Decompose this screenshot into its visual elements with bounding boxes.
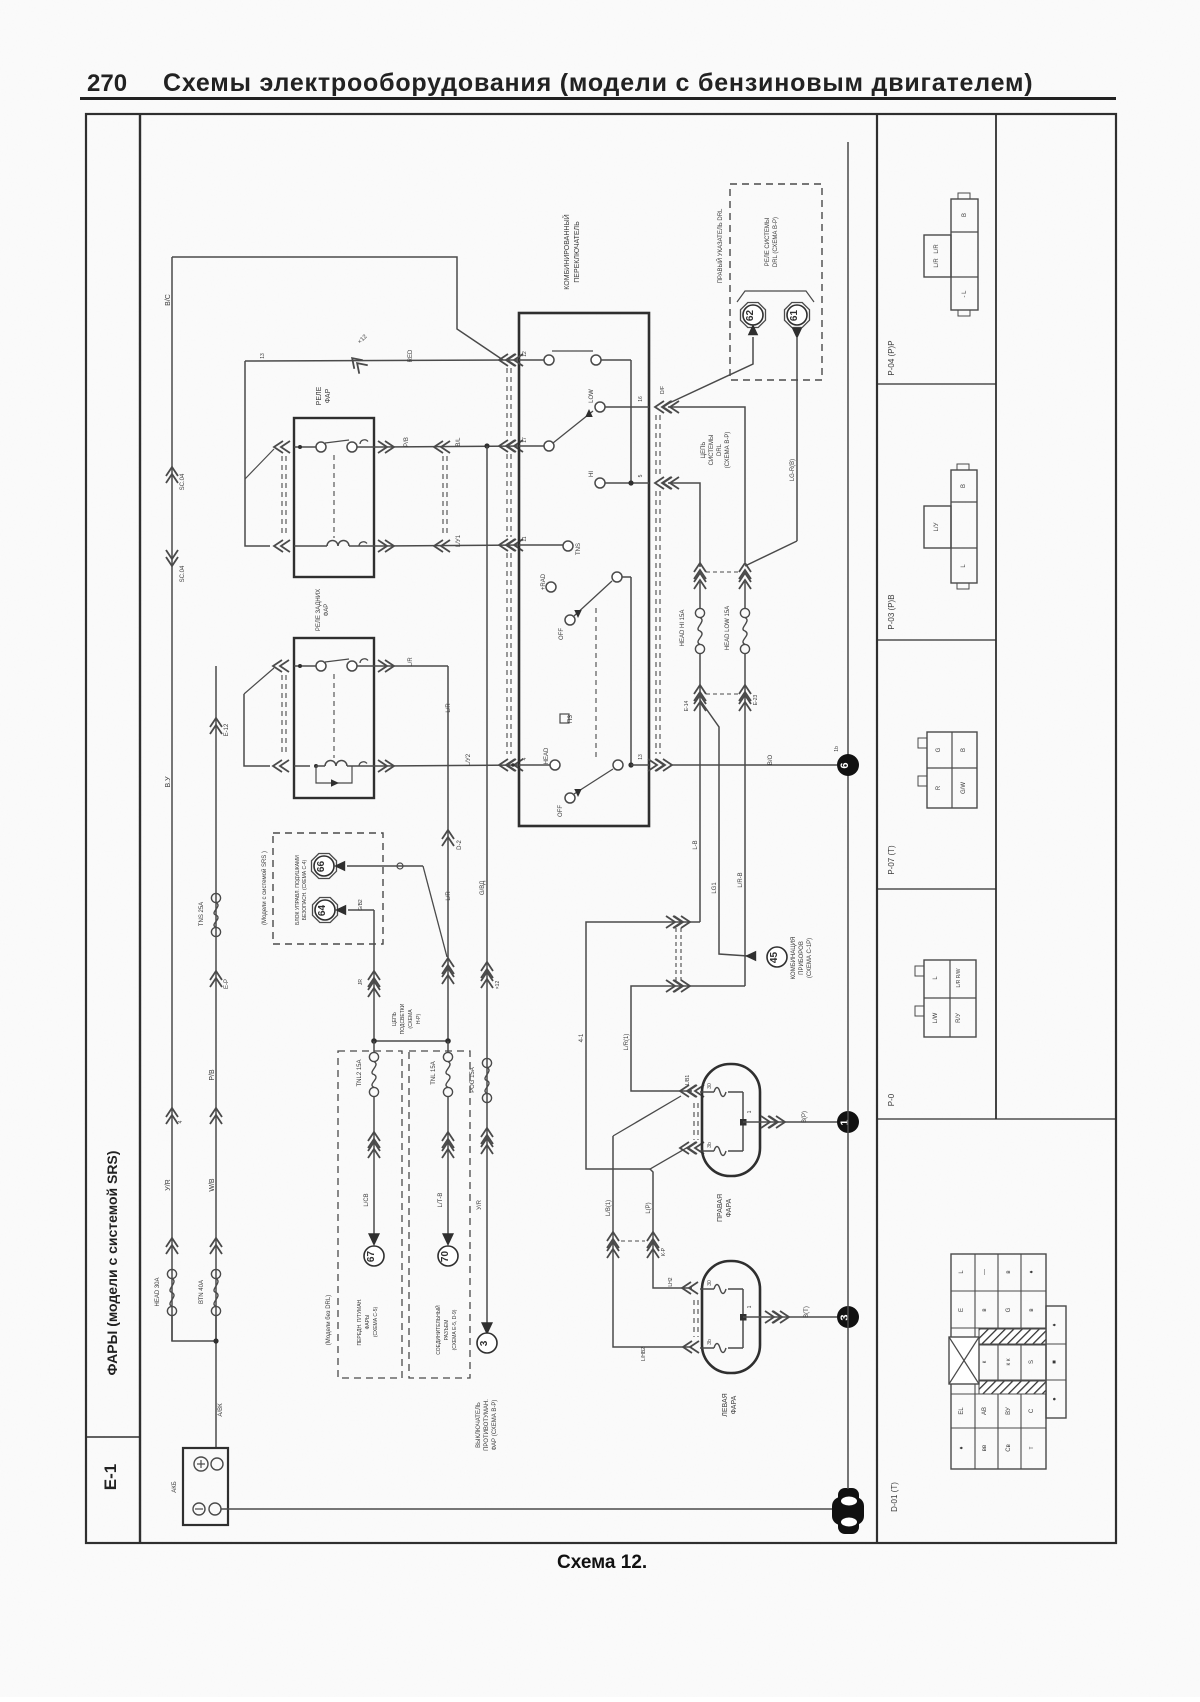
svg-text:DRL: DRL	[717, 443, 723, 456]
svg-text:D-2: D-2	[457, 840, 463, 850]
svg-text:Е-Р: Е-Р	[224, 979, 230, 989]
svg-text:64: 64	[317, 905, 328, 917]
svg-text:66: 66	[316, 861, 327, 873]
svg-text:т: т	[1029, 1446, 1035, 1449]
svg-text:ОFF: ОFF	[559, 628, 565, 640]
svg-text:НI: НI	[589, 471, 595, 477]
svg-text:L/У1: L/У1	[456, 534, 462, 547]
svg-text:G/ВД: G/ВД	[480, 881, 486, 895]
svg-text:вв: вв	[982, 1445, 988, 1451]
svg-text:45: 45	[769, 952, 780, 964]
svg-text:4: 4	[178, 1120, 184, 1123]
svg-text:ПЕРЕДН. П/ТУМАН.: ПЕРЕДН. П/ТУМАН.	[357, 1298, 363, 1345]
svg-text:4: 4	[522, 757, 528, 760]
svg-text:ТNS 25А: ТNS 25А	[199, 902, 205, 926]
svg-text:G: G	[1006, 1307, 1012, 1312]
svg-text:17: 17	[522, 437, 528, 443]
svg-text:ПРАВАЯ: ПРАВАЯ	[717, 1194, 724, 1222]
svg-text:30: 30	[707, 1280, 713, 1286]
svg-text:3b: 3b	[707, 1142, 713, 1148]
svg-text:(СХЕМА С-1Р): (СХЕМА С-1Р)	[807, 938, 813, 978]
svg-text:АВ: АВ	[982, 1407, 988, 1415]
svg-text:1b: 1b	[834, 746, 840, 752]
svg-text:D/F: D/F	[660, 386, 666, 394]
svg-text:1: 1	[747, 1110, 753, 1113]
svg-text:5: 5	[638, 474, 644, 477]
svg-text:ФАРА: ФАРА	[731, 1395, 738, 1414]
svg-text:ВУ: ВУ	[1006, 1407, 1012, 1415]
svg-text:(СХЕМА В-Р): (СХЕМА В-Р)	[725, 432, 731, 469]
svg-text:КОМБИНИРОВАННЫЙ: КОМБИНИРОВАННЫЙ	[562, 214, 571, 289]
svg-text:DRL (СХЕМА В-Р): DRL (СХЕМА В-Р)	[773, 217, 779, 267]
svg-text:(Модели с системой SRS ): (Модели с системой SRS )	[261, 851, 268, 925]
svg-text:ЕL: ЕL	[959, 1407, 965, 1415]
svg-text:НЕАD НI 15А: НЕАD НI 15А	[680, 610, 686, 647]
svg-text:ПРОТИВОТУМАН.: ПРОТИВОТУМАН.	[484, 1399, 490, 1451]
svg-text:РАЗЪЕМ: РАЗЪЕМ	[444, 1320, 450, 1341]
svg-text:к: к	[982, 1360, 988, 1363]
svg-text:30: 30	[707, 1083, 713, 1089]
svg-text:в: в	[1006, 1270, 1012, 1273]
svg-text:РОG 15А: РОG 15А	[470, 1067, 476, 1093]
svg-text:ФАР (СХЕМА В-Р): ФАР (СХЕМА В-Р)	[492, 1400, 498, 1451]
svg-text:S: S	[1029, 1360, 1035, 1364]
svg-text:У/R: У/R	[165, 1179, 172, 1190]
svg-text:Р/В: Р/В	[404, 437, 410, 447]
svg-text:В: В	[962, 213, 968, 217]
svg-text:L/R-В: L/R-В	[738, 872, 744, 887]
svg-text:КОМБИНАЦИЯ: КОМБИНАЦИЯ	[791, 937, 797, 980]
svg-text:У/R: У/R	[477, 1199, 483, 1209]
svg-text:L/СВ: L/СВ	[364, 1193, 370, 1206]
svg-text:РЕЛЕ ЗАДНИХ: РЕЛЕ ЗАДНИХ	[316, 589, 322, 631]
svg-text:L-В: L-В	[693, 840, 699, 849]
svg-text:ПОДСВЕТКИ: ПОДСВЕТКИ	[400, 1003, 406, 1034]
svg-text:Е-14: Е-14	[684, 701, 690, 712]
svg-text:R/У: R/У	[956, 1013, 962, 1023]
svg-text:13: 13	[638, 754, 644, 760]
svg-text:13: 13	[260, 353, 266, 359]
svg-text:Е: Е	[959, 1308, 965, 1312]
svg-text:6: 6	[839, 762, 851, 768]
svg-text:ТNL 15А: ТNL 15А	[431, 1061, 437, 1084]
svg-text:ТNS: ТNS	[576, 543, 582, 555]
svg-text:SC.04: SC.04	[180, 565, 186, 582]
svg-text:ФАРА: ФАРА	[726, 1198, 733, 1217]
svg-text:D-01 (Т): D-01 (Т)	[890, 1482, 899, 1512]
svg-text:(СХЕМА: (СХЕМА	[408, 1009, 414, 1029]
svg-text:в: в	[982, 1308, 988, 1311]
svg-text:61: 61	[789, 310, 800, 322]
svg-text:3: 3	[479, 1340, 490, 1346]
svg-text:ЦЕПЬ: ЦЕПЬ	[392, 1011, 398, 1026]
svg-text:(СХЕМА Е-5, D-9): (СХЕМА Е-5, D-9)	[452, 1309, 458, 1350]
svg-text:L/НВ2: L/НВ2	[641, 1347, 647, 1361]
svg-text:L(Р): L(Р)	[646, 1202, 652, 1213]
svg-text:В: В	[961, 484, 967, 488]
svg-text:ТNL2 15А: ТNL2 15А	[357, 1059, 363, 1086]
svg-text:ПЗ: ПЗ	[568, 715, 574, 723]
svg-text:L/В(1): L/В(1)	[606, 1200, 612, 1216]
svg-text:Р-04 (Р)Р: Р-04 (Р)Р	[887, 340, 896, 375]
svg-text:ПРАВЫЙ УКАЗАТЕЛЬ DRL: ПРАВЫЙ УКАЗАТЕЛЬ DRL	[716, 208, 724, 283]
svg-text:L/R: L/R	[934, 244, 940, 254]
svg-text:HEAD 30А: HEAD 30А	[155, 1277, 161, 1306]
svg-text:L/У: L/У	[934, 522, 940, 531]
svg-text:ПЕРЕКЛЮЧАТЕЛЬ: ПЕРЕКЛЮЧАТЕЛЬ	[574, 221, 581, 283]
svg-text:♦: ♦	[959, 1446, 965, 1449]
svg-text:В: В	[961, 748, 967, 752]
svg-text:А/ВК: А/ВК	[218, 1403, 224, 1417]
svg-text:ФАР: ФАР	[324, 604, 330, 616]
svg-text:В.У: В.У	[165, 776, 172, 788]
svg-text:L/У2: L/У2	[466, 753, 472, 766]
svg-text:♦: ♦	[1052, 1323, 1058, 1326]
svg-text:ЦЕПЬ: ЦЕПЬ	[701, 442, 707, 459]
svg-text:В/О: В/О	[768, 755, 774, 766]
svg-text:Св: Св	[1006, 1444, 1012, 1452]
svg-text:1: 1	[839, 1119, 851, 1125]
svg-text:В(Р): В(Р)	[802, 1111, 808, 1123]
svg-text:ФАРЫ (модели с системой SRS): ФАРЫ (модели с системой SRS)	[104, 1151, 120, 1376]
svg-text:RЕD: RЕD	[408, 349, 414, 362]
svg-text:L/В1: L/В1	[685, 1075, 691, 1086]
svg-text:L/R: L/R	[408, 657, 414, 667]
svg-text:R: R	[936, 785, 942, 790]
svg-text:СОЕДИНИТЕЛЬНЫЙ: СОЕДИНИТЕЛЬНЫЙ	[434, 1305, 442, 1355]
svg-text:67: 67	[366, 1251, 377, 1263]
svg-text:270: 270	[87, 70, 127, 97]
svg-text:С: С	[1029, 1408, 1035, 1413]
svg-text:L/R R/W: L/R R/W	[956, 968, 962, 987]
svg-text:НЕАD LOW 15А: НЕАD LOW 15А	[725, 606, 731, 650]
svg-text:+RАD: +RАD	[541, 573, 547, 590]
svg-text:К-Р: К-Р	[661, 1247, 667, 1256]
svg-text:В/С: В/С	[165, 294, 172, 306]
svg-text:В/L: В/L	[456, 437, 462, 447]
svg-text:СИСТЕМЫ: СИСТЕМЫ	[709, 435, 715, 466]
svg-text:W/В: W/В	[209, 1178, 216, 1192]
svg-text:11: 11	[522, 536, 528, 541]
svg-text:ПРИБОРОВ: ПРИБОРОВ	[799, 941, 805, 975]
svg-text:к к: к к	[1006, 1358, 1012, 1365]
svg-text:ФАРЫ: ФАРЫ	[365, 1314, 371, 1329]
svg-text:4-1: 4-1	[579, 1033, 585, 1042]
svg-text:—: —	[982, 1269, 988, 1275]
svg-text:16: 16	[638, 396, 644, 402]
svg-text:- L: - L	[962, 290, 968, 298]
svg-text:АКБ: АКБ	[172, 1481, 178, 1492]
svg-text:РЕЛЕ СИСТЕМЫ: РЕЛЕ СИСТЕМЫ	[765, 218, 771, 266]
svg-text:Е-12: Е-12	[224, 723, 230, 736]
svg-text:ЛЕВАЯ: ЛЕВАЯ	[722, 1393, 729, 1416]
svg-text:Схемы электрооборудования (мод: Схемы электрооборудования (модели с бенз…	[163, 69, 1033, 97]
svg-text:G: G	[936, 747, 942, 752]
svg-text:В(Т): В(Т)	[804, 1306, 810, 1318]
svg-text:3b: 3b	[707, 1339, 713, 1345]
svg-text:Схема 12.: Схема 12.	[557, 1552, 647, 1573]
svg-text:JR: JR	[358, 979, 364, 986]
svg-text:ВТN 40А: ВТN 40А	[199, 1280, 205, 1304]
svg-text:62: 62	[745, 310, 756, 322]
svg-text:G/W: G/W	[961, 782, 967, 794]
svg-text:×12: ×12	[495, 981, 501, 990]
svg-text:Н-Р): Н-Р)	[416, 1014, 422, 1025]
svg-text:Р/В: Р/В	[209, 1069, 216, 1081]
svg-text:SC.04: SC.04	[180, 473, 186, 490]
svg-text:1: 1	[747, 1305, 753, 1308]
svg-text:3: 3	[839, 1314, 851, 1320]
svg-text:LG-R(В): LG-R(В)	[790, 459, 796, 481]
svg-text:■: ■	[1052, 1360, 1058, 1364]
svg-text:БЛОК УПРАВЛ. ПОДУШКАМИ: БЛОК УПРАВЛ. ПОДУШКАМИ	[295, 855, 301, 925]
svg-text:♦: ♦	[1029, 1270, 1035, 1273]
svg-text:(СХЕМА С-5): (СХЕМА С-5)	[373, 1307, 379, 1338]
svg-text:LН2: LН2	[668, 1277, 674, 1286]
svg-text:Р-0: Р-0	[887, 1093, 896, 1106]
svg-text:в: в	[1029, 1308, 1035, 1311]
svg-text:L/R: L/R	[934, 258, 940, 268]
svg-text:LOW: LOW	[589, 389, 595, 403]
svg-text:Р-03 (Р)В: Р-03 (Р)В	[887, 594, 896, 629]
svg-text:70: 70	[440, 1251, 451, 1263]
svg-text:ВЫКЛЮЧАТЕЛЬ: ВЫКЛЮЧАТЕЛЬ	[476, 1402, 482, 1448]
svg-text:L/W: L/W	[933, 1012, 939, 1023]
svg-text:LG1: LG1	[712, 882, 718, 894]
svg-text:ФАР: ФАР	[325, 388, 332, 403]
svg-text:БЕЗОПАСН. (СХЕМА С-4): БЕЗОПАСН. (СХЕМА С-4)	[302, 859, 308, 920]
svg-text:L/R: L/R	[446, 891, 452, 901]
svg-text:(Модели без DRL): (Модели без DRL)	[326, 1295, 332, 1345]
svg-text:Е-23: Е-23	[753, 695, 759, 706]
svg-text:G/В2: G/В2	[358, 899, 364, 911]
svg-text:РЕЛЕ: РЕЛЕ	[316, 386, 323, 405]
svg-text:Е-1: Е-1	[101, 1464, 120, 1490]
svg-text:L/R(1): L/R(1)	[624, 1034, 630, 1051]
svg-text:L/Т-В: L/Т-В	[438, 1193, 444, 1208]
svg-text:●: ●	[1052, 1397, 1058, 1401]
svg-text:Р-07 (Т): Р-07 (Т)	[887, 845, 896, 875]
svg-text:L/R: L/R	[446, 703, 452, 713]
svg-text:НЕАD: НЕАD	[544, 747, 550, 764]
svg-text:ОFF: ОFF	[558, 805, 564, 817]
